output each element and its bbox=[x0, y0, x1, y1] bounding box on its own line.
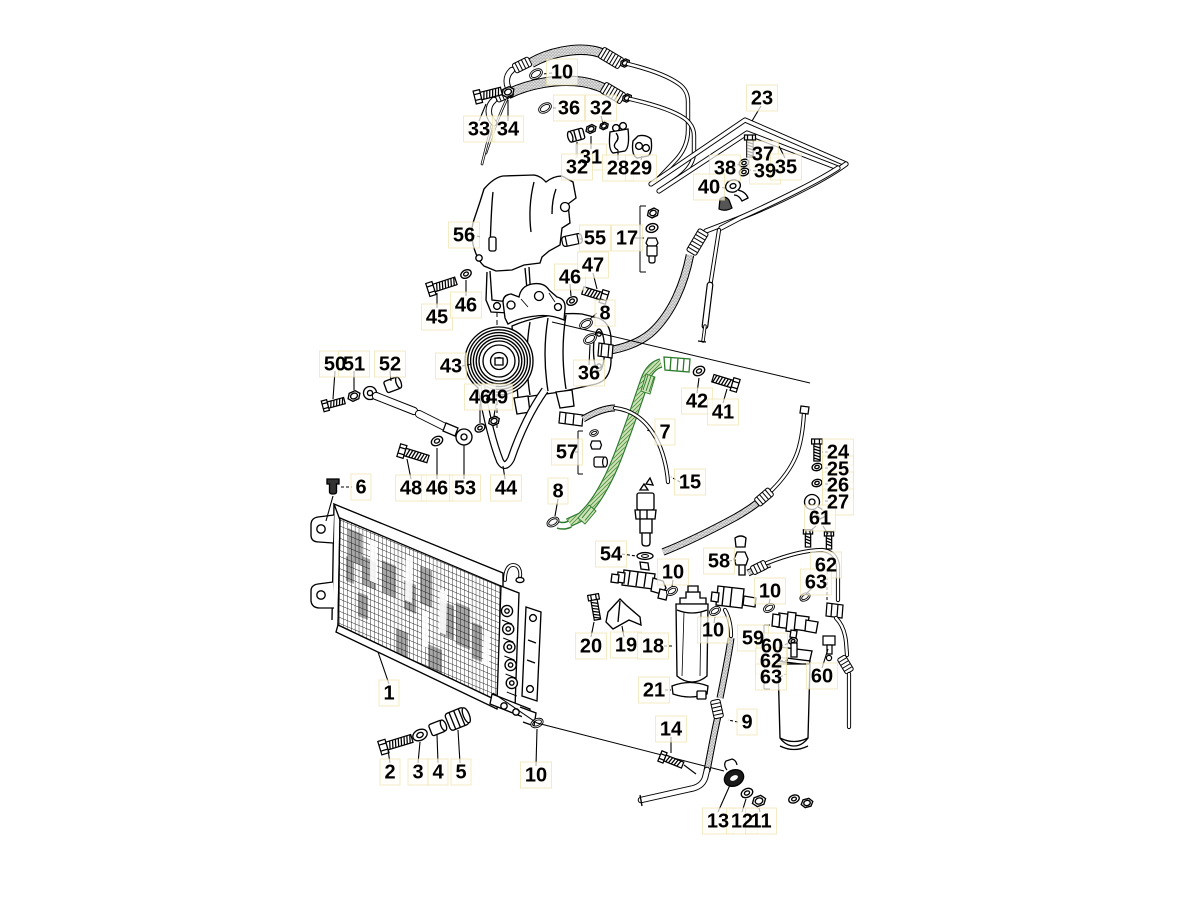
svg-text:46: 46 bbox=[455, 295, 477, 317]
svg-text:51: 51 bbox=[343, 354, 365, 376]
svg-text:29: 29 bbox=[630, 158, 652, 180]
svg-text:11: 11 bbox=[750, 811, 771, 833]
svg-text:3: 3 bbox=[412, 762, 423, 784]
svg-text:32: 32 bbox=[566, 157, 588, 179]
svg-text:5: 5 bbox=[455, 762, 466, 784]
svg-text:54: 54 bbox=[600, 544, 623, 566]
svg-text:8: 8 bbox=[599, 303, 610, 325]
svg-text:42: 42 bbox=[686, 391, 708, 413]
svg-text:41: 41 bbox=[712, 402, 734, 424]
svg-text:32: 32 bbox=[590, 98, 612, 120]
svg-text:52: 52 bbox=[379, 354, 401, 376]
svg-text:33: 33 bbox=[468, 119, 490, 141]
svg-text:10: 10 bbox=[702, 620, 724, 642]
svg-text:40: 40 bbox=[698, 177, 720, 199]
svg-text:20: 20 bbox=[580, 636, 602, 658]
svg-text:43: 43 bbox=[440, 356, 462, 378]
svg-text:35: 35 bbox=[775, 157, 797, 179]
svg-text:9: 9 bbox=[741, 712, 752, 734]
svg-text:10: 10 bbox=[525, 765, 547, 787]
svg-text:53: 53 bbox=[454, 478, 476, 500]
svg-text:8: 8 bbox=[552, 481, 563, 503]
svg-text:15: 15 bbox=[679, 472, 701, 494]
svg-text:18: 18 bbox=[642, 636, 664, 658]
svg-text:48: 48 bbox=[400, 478, 422, 500]
svg-text:57: 57 bbox=[556, 442, 578, 464]
svg-text:45: 45 bbox=[426, 307, 448, 329]
svg-text:10: 10 bbox=[662, 562, 684, 584]
svg-text:49: 49 bbox=[486, 387, 508, 409]
svg-text:60: 60 bbox=[811, 666, 833, 688]
svg-text:55: 55 bbox=[584, 228, 606, 250]
svg-text:10: 10 bbox=[551, 62, 573, 84]
svg-text:7: 7 bbox=[659, 422, 670, 444]
svg-text:21: 21 bbox=[643, 680, 665, 702]
svg-text:17: 17 bbox=[616, 228, 638, 250]
svg-text:23: 23 bbox=[751, 88, 773, 110]
svg-text:63: 63 bbox=[760, 667, 782, 689]
svg-text:2: 2 bbox=[384, 762, 395, 784]
svg-text:46: 46 bbox=[559, 267, 581, 289]
svg-text:14: 14 bbox=[660, 719, 683, 741]
svg-text:58: 58 bbox=[708, 551, 730, 573]
svg-text:4: 4 bbox=[432, 762, 444, 784]
svg-text:46: 46 bbox=[426, 478, 448, 500]
svg-text:36: 36 bbox=[578, 363, 600, 385]
svg-text:6: 6 bbox=[355, 477, 366, 499]
svg-text:36: 36 bbox=[558, 98, 580, 120]
svg-text:63: 63 bbox=[805, 572, 827, 594]
svg-text:44: 44 bbox=[495, 478, 518, 500]
svg-text:56: 56 bbox=[453, 225, 475, 247]
svg-text:19: 19 bbox=[615, 635, 637, 657]
svg-text:10: 10 bbox=[759, 581, 781, 603]
svg-text:1: 1 bbox=[383, 683, 394, 705]
svg-text:47: 47 bbox=[582, 255, 604, 277]
svg-text:61: 61 bbox=[809, 508, 831, 530]
svg-text:39: 39 bbox=[754, 161, 776, 183]
svg-text:34: 34 bbox=[497, 119, 520, 141]
svg-text:13: 13 bbox=[707, 811, 729, 833]
svg-text:28: 28 bbox=[607, 158, 629, 180]
